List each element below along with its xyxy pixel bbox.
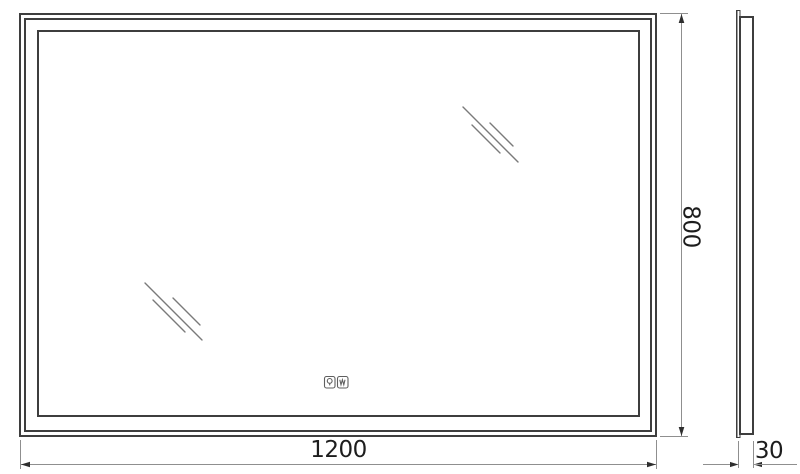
side-view <box>737 11 754 438</box>
reflection-line <box>173 298 200 325</box>
demister-control-icon <box>338 377 349 389</box>
side-body-panel <box>740 17 753 434</box>
reflection-line <box>490 123 513 146</box>
height-dimension-label: 800 <box>680 205 701 247</box>
width-dimension-label: 1200 <box>288 440 389 461</box>
front-outer-frame-line <box>20 14 656 436</box>
arrowhead-right <box>647 462 656 468</box>
reflection-line <box>145 283 202 340</box>
arrowhead-left <box>21 462 30 468</box>
reflection-line <box>463 107 518 162</box>
arrowhead-right <box>730 462 739 467</box>
front-view <box>20 14 656 436</box>
drawing-canvas: 1200 800 30 <box>0 0 800 474</box>
reflection-mark-lower <box>145 283 202 340</box>
light-control-icon <box>325 377 336 389</box>
wave-glyph <box>340 380 345 385</box>
arrowhead-bottom <box>679 427 685 436</box>
depth-dimension-label: 30 <box>752 441 786 462</box>
front-outer-frame-second-line <box>25 19 651 431</box>
front-inner-frame-line <box>38 31 639 416</box>
reflection-mark-upper <box>463 107 518 162</box>
arrowhead-top <box>679 14 685 23</box>
touch-controls <box>325 377 349 389</box>
bulb-glyph <box>327 379 332 384</box>
